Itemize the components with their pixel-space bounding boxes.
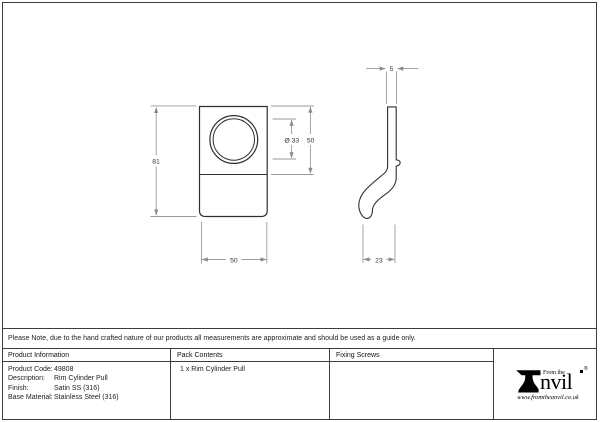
description-value: Rim Cylinder Pull (54, 374, 166, 383)
technical-drawing: 81 50 Ø 33 50 (2, 2, 597, 328)
pack-contents-column: Pack Contents 1 x Rim Cylinder Pull (171, 349, 330, 420)
finish-label: Finish: (8, 384, 54, 393)
info-table: Product Information Product Code: 49808 … (2, 349, 597, 420)
side-view: 5 23 (359, 66, 418, 264)
logo-name-text: nvil (540, 371, 572, 393)
pull-depth-dimension: 23 (375, 257, 383, 264)
base-material-value: Stainless Steel (316) (54, 393, 166, 402)
product-information-header: Product Information (2, 349, 170, 362)
table-row: Finish: Satin SS (316) (8, 384, 166, 393)
base-material-label: Base Material: (8, 393, 54, 402)
side-view-profile-outline (359, 107, 400, 219)
front-width-dimension: 50 (230, 258, 238, 265)
pack-contents-value: 1 x Rim Cylinder Pull (180, 365, 325, 374)
fixing-screws-body (330, 362, 493, 365)
anvil-logo-icon (514, 369, 542, 394)
registered-trademark-icon: ® (584, 366, 588, 372)
cylinder-section-height-dimension: 50 (307, 138, 315, 145)
logo-website-url: www.fromtheanvil.co.uk (510, 394, 587, 401)
note-bar: Please Note, due to the hand crafted nat… (2, 328, 597, 349)
front-height-dimension: 81 (152, 159, 160, 166)
cylinder-diameter-dimension: Ø 33 (284, 138, 299, 145)
product-information-column: Product Information Product Code: 49808 … (2, 349, 171, 420)
logo-dot-icon (580, 370, 583, 373)
note-text: Please Note, due to the hand crafted nat… (8, 335, 416, 342)
fixing-screws-column: Fixing Screws (330, 349, 494, 420)
pack-contents-body: 1 x Rim Cylinder Pull (171, 362, 329, 374)
product-information-body: Product Code: 49808 Description: Rim Cyl… (2, 362, 170, 403)
pack-contents-header: Pack Contents (171, 349, 329, 362)
front-view-plate-outline (200, 107, 268, 217)
product-code-label: Product Code: (8, 365, 54, 374)
description-label: Description: (8, 374, 54, 383)
plate-thickness-dimension: 5 (390, 66, 394, 73)
table-row: Product Code: 49808 (8, 365, 166, 374)
table-row: Description: Rim Cylinder Pull (8, 374, 166, 383)
finish-value: Satin SS (316) (54, 384, 166, 393)
fixing-screws-header: Fixing Screws (330, 349, 493, 362)
from-the-anvil-logo: From the nvil ® www.fromtheanvil.co.uk (494, 349, 597, 420)
product-code-value: 49808 (54, 365, 166, 374)
table-row: Base Material: Stainless Steel (316) (8, 393, 166, 402)
front-view: 81 50 Ø 33 50 (149, 106, 318, 265)
product-spec-sheet: 81 50 Ø 33 50 (0, 0, 600, 422)
logo-cell: From the nvil ® www.fromtheanvil.co.uk (494, 349, 597, 420)
